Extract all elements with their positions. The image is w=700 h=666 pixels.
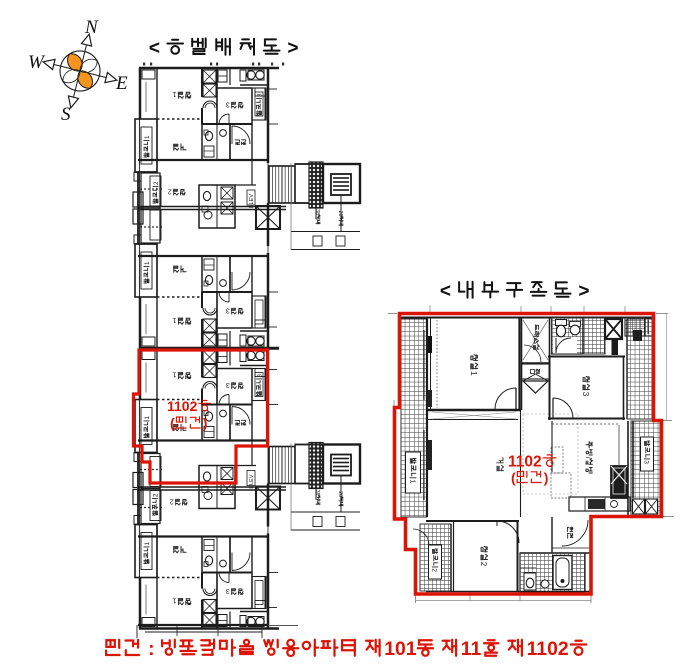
svg-text:(: (	[170, 415, 175, 431]
svg-text:3: 3	[581, 392, 590, 397]
svg-text:3: 3	[226, 381, 230, 388]
svg-text:11: 11	[461, 638, 482, 660]
svg-text:3: 3	[226, 306, 230, 313]
svg-text:<: <	[440, 281, 451, 302]
svg-text:1: 1	[469, 371, 479, 376]
svg-text:>: >	[287, 38, 298, 59]
svg-text:2: 2	[152, 493, 159, 497]
svg-text:1: 1	[144, 261, 151, 265]
svg-text:2: 2	[168, 187, 172, 194]
svg-text:1102: 1102	[167, 398, 198, 414]
svg-text:1102: 1102	[527, 638, 569, 660]
svg-text:28: 28	[337, 211, 343, 217]
svg-text:ELEV: ELEV	[249, 194, 255, 208]
svg-text:28: 28	[337, 491, 343, 497]
svg-text:3: 3	[643, 460, 650, 464]
svg-text:1102: 1102	[508, 454, 542, 471]
svg-text:2: 2	[479, 562, 488, 567]
svg-text::: :	[143, 638, 160, 660]
svg-text:2: 2	[170, 497, 174, 504]
svg-text:1: 1	[144, 542, 151, 546]
svg-text:1: 1	[144, 135, 151, 139]
svg-text:(: (	[511, 470, 516, 486]
svg-text:ELEV: ELEV	[249, 474, 255, 488]
svg-text:): )	[544, 470, 549, 486]
svg-text:3: 3	[226, 587, 230, 594]
svg-text:E: E	[115, 73, 128, 94]
svg-text:>: >	[578, 281, 589, 302]
svg-text:1: 1	[172, 597, 176, 606]
svg-text:<: <	[149, 38, 160, 59]
svg-text:3: 3	[256, 374, 263, 378]
svg-text:1: 1	[172, 90, 176, 99]
svg-text:1: 1	[172, 371, 176, 380]
svg-text:1: 1	[408, 479, 417, 483]
svg-text:38: 38	[314, 490, 320, 496]
svg-text:3: 3	[226, 100, 230, 107]
svg-text:1: 1	[144, 416, 151, 420]
svg-text:3: 3	[256, 93, 263, 97]
svg-text:W: W	[28, 52, 46, 73]
svg-text:1: 1	[172, 316, 176, 325]
svg-text:S: S	[61, 104, 71, 125]
svg-text:38: 38	[314, 209, 320, 215]
svg-text:2: 2	[431, 568, 438, 572]
svg-text:): )	[203, 415, 208, 431]
svg-text:101: 101	[384, 638, 417, 660]
svg-text:N: N	[84, 17, 99, 38]
svg-text:2: 2	[153, 181, 160, 185]
